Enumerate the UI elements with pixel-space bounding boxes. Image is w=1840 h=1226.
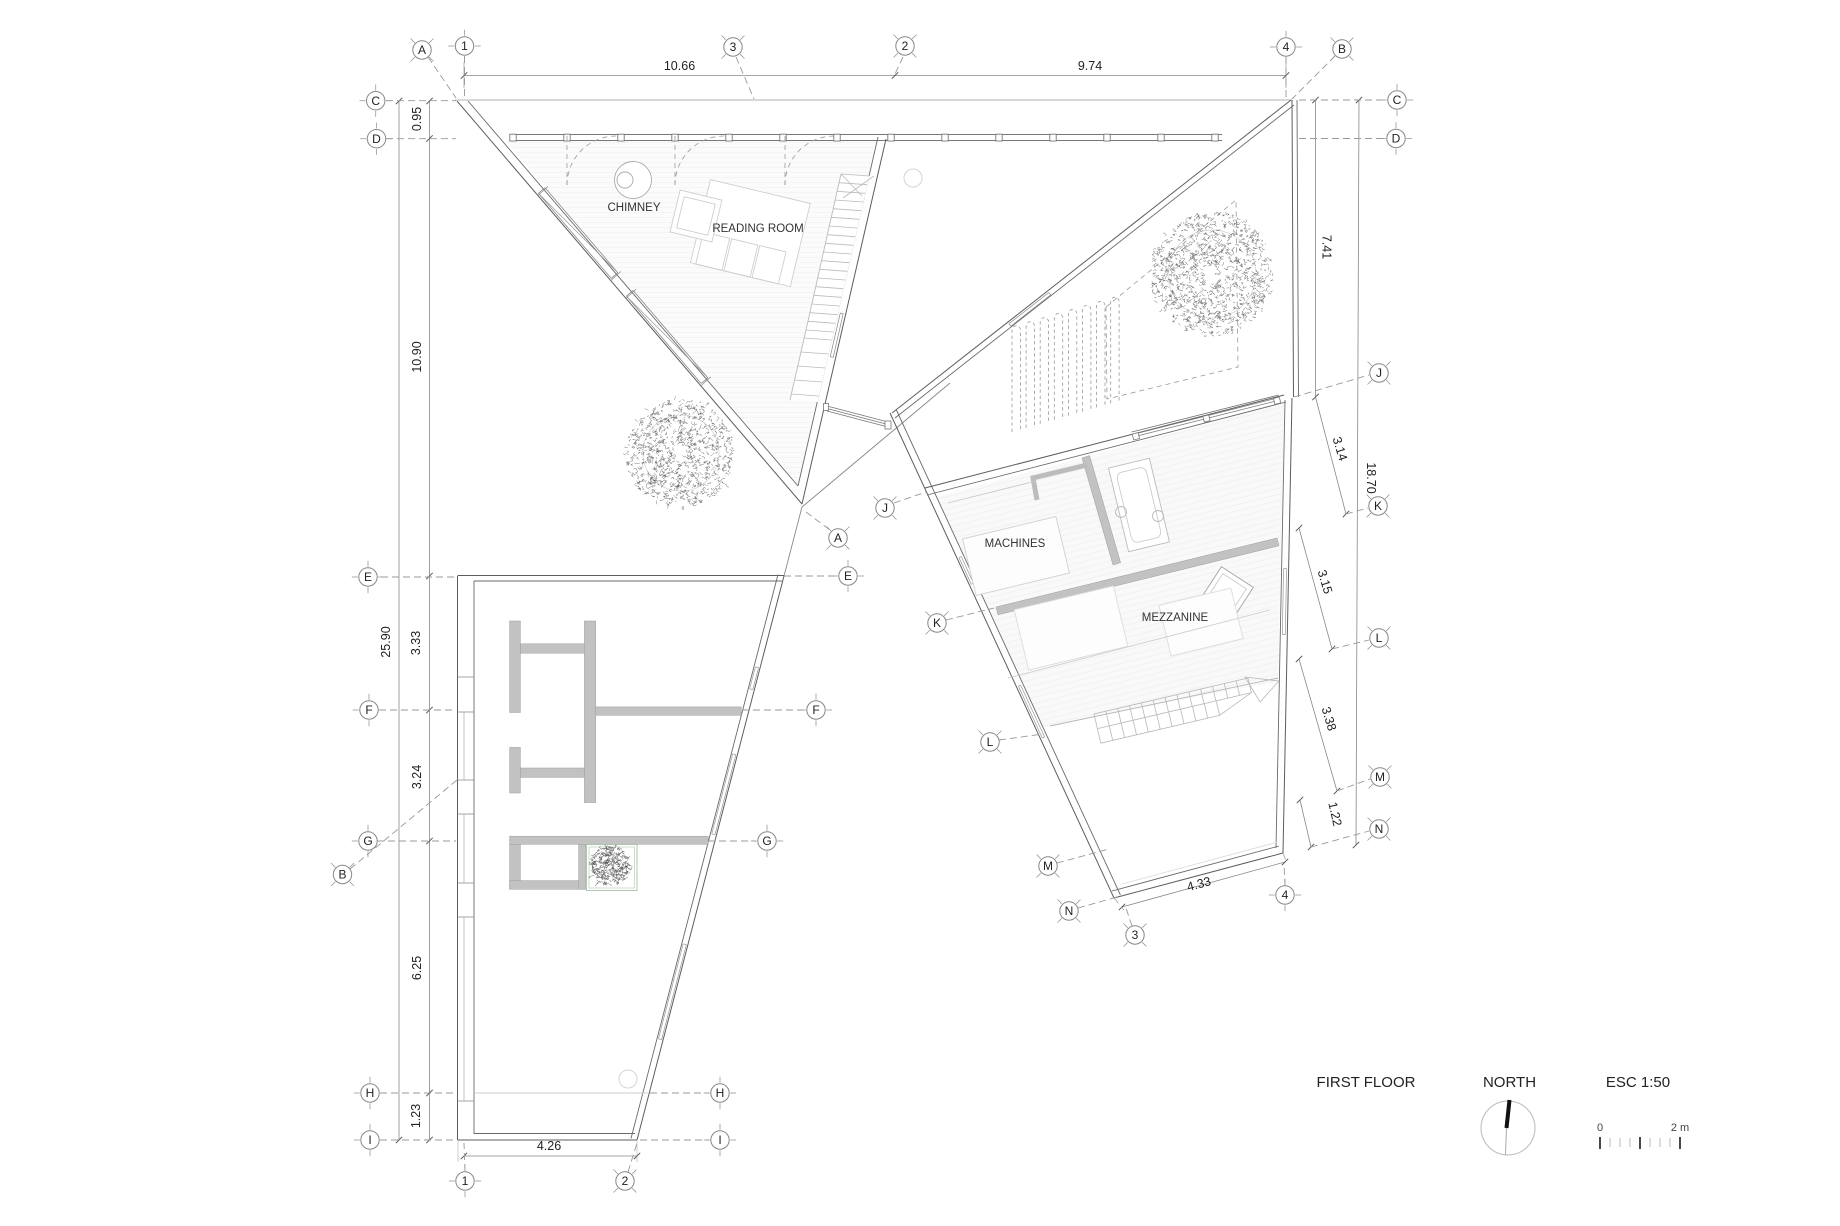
svg-text:I: I	[368, 1133, 371, 1147]
svg-text:ESC 1:50: ESC 1:50	[1606, 1074, 1670, 1091]
svg-text:A: A	[418, 43, 426, 57]
svg-text:H: H	[716, 1086, 725, 1100]
svg-text:1.23: 1.23	[409, 1104, 423, 1128]
svg-text:6.25: 6.25	[410, 956, 424, 980]
svg-text:3.24: 3.24	[410, 765, 424, 789]
svg-text:E: E	[844, 569, 852, 583]
svg-text:18.70: 18.70	[1364, 462, 1378, 493]
svg-text:3.33: 3.33	[409, 631, 423, 655]
svg-text:G: G	[762, 834, 771, 848]
svg-text:1: 1	[461, 39, 468, 53]
svg-text:F: F	[812, 703, 819, 717]
svg-text:10.66: 10.66	[664, 59, 695, 73]
svg-text:9.74: 9.74	[1078, 59, 1102, 73]
svg-text:K: K	[933, 616, 941, 630]
svg-text:2 m: 2 m	[1671, 1122, 1689, 1134]
svg-text:A: A	[834, 531, 842, 545]
svg-text:1: 1	[462, 1174, 469, 1188]
svg-text:K: K	[1374, 499, 1382, 513]
svg-text:N: N	[1375, 822, 1384, 836]
svg-text:M: M	[1043, 859, 1053, 873]
svg-text:3: 3	[1132, 928, 1139, 942]
svg-text:C: C	[371, 94, 380, 108]
svg-text:0.95: 0.95	[410, 107, 424, 131]
svg-text:3: 3	[730, 40, 737, 54]
svg-text:M: M	[1375, 770, 1385, 784]
svg-text:L: L	[1376, 631, 1383, 645]
svg-text:10.90: 10.90	[410, 341, 424, 372]
svg-text:2: 2	[622, 1174, 629, 1188]
svg-text:N: N	[1065, 904, 1074, 918]
svg-text:FIRST FLOOR: FIRST FLOOR	[1317, 1074, 1416, 1091]
svg-text:F: F	[365, 703, 372, 717]
svg-text:MACHINES: MACHINES	[985, 538, 1046, 550]
svg-text:D: D	[1392, 132, 1401, 146]
svg-text:J: J	[1376, 366, 1382, 380]
svg-text:READING ROOM: READING ROOM	[712, 223, 803, 235]
svg-text:4: 4	[1283, 40, 1290, 54]
svg-text:G: G	[363, 834, 372, 848]
svg-text:7.41: 7.41	[1320, 235, 1334, 259]
svg-text:4.26: 4.26	[537, 1139, 561, 1153]
svg-text:NORTH: NORTH	[1483, 1074, 1536, 1091]
svg-text:MEZZANINE: MEZZANINE	[1142, 612, 1209, 624]
svg-text:D: D	[372, 132, 381, 146]
svg-text:H: H	[366, 1086, 375, 1100]
svg-text:CHIMNEY: CHIMNEY	[607, 202, 660, 214]
svg-text:4: 4	[1282, 888, 1289, 902]
svg-text:25.90: 25.90	[379, 626, 393, 657]
svg-text:B: B	[338, 868, 346, 882]
svg-text:C: C	[1393, 93, 1402, 107]
svg-text:J: J	[882, 501, 888, 515]
svg-text:E: E	[364, 570, 372, 584]
svg-text:0: 0	[1597, 1122, 1603, 1134]
svg-text:I: I	[718, 1133, 721, 1147]
svg-text:2: 2	[902, 39, 909, 53]
svg-text:B: B	[1338, 42, 1346, 56]
svg-text:L: L	[987, 735, 994, 749]
